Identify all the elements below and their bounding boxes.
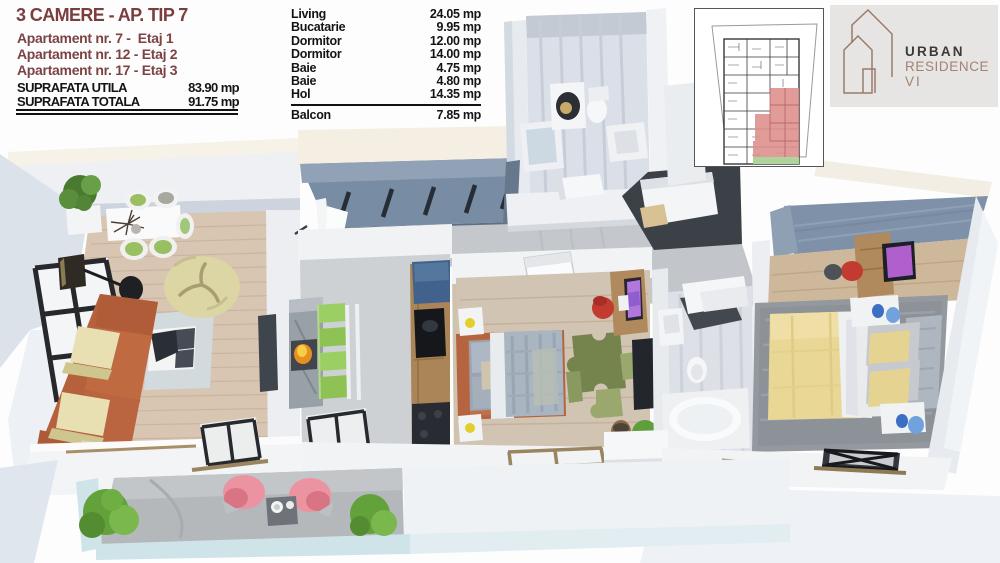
svg-text:VI: VI <box>905 74 922 89</box>
svg-text:RESIDENCE: RESIDENCE <box>905 59 989 74</box>
svg-text:URBAN: URBAN <box>905 44 965 59</box>
